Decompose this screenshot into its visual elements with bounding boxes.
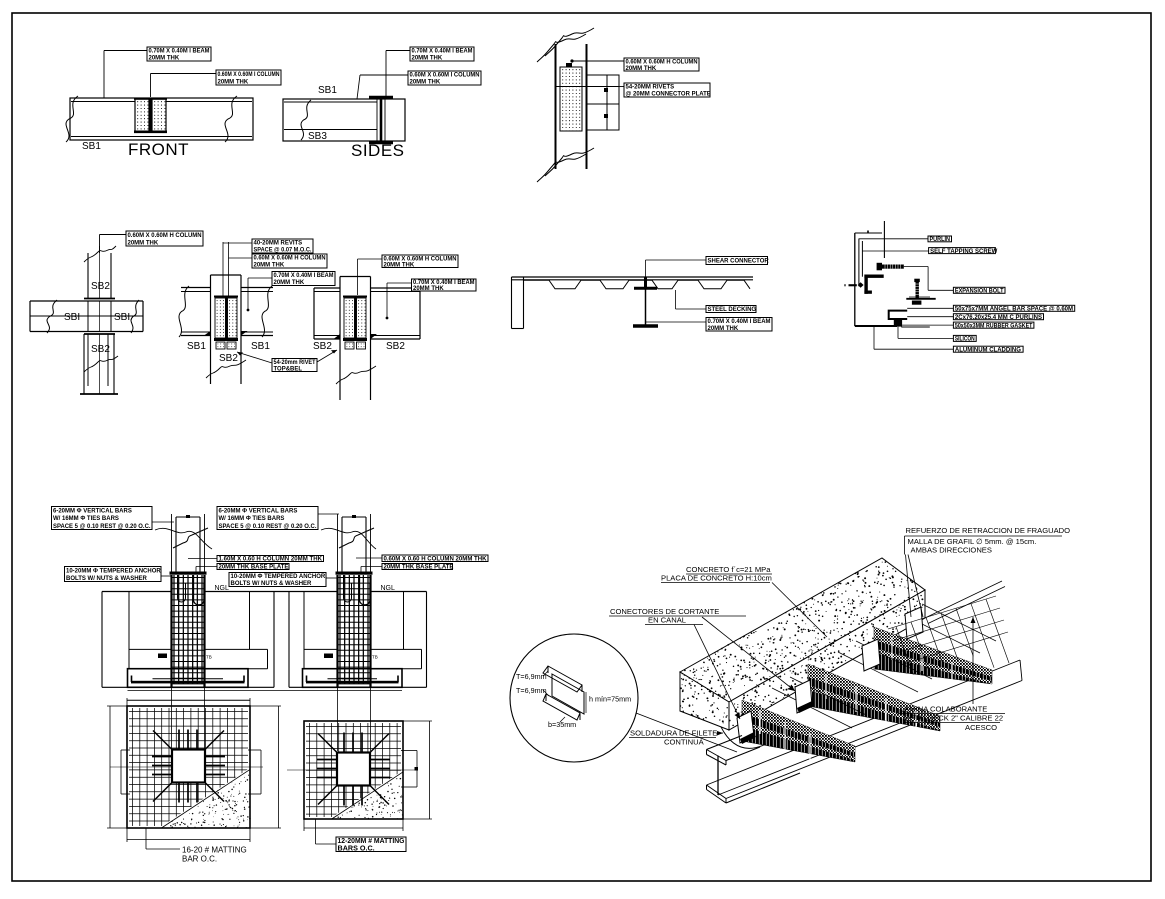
svg-text:METALDECK 2" CALIBRE 22: METALDECK 2" CALIBRE 22 [903,714,1003,723]
svg-text:SHEAR CONNECTOR: SHEAR CONNECTOR [708,259,770,265]
svg-text:STEEL DECKING: STEEL DECKING [708,307,757,313]
svg-text:BARS O.C.: BARS O.C. [338,843,375,852]
svg-text:0.60M X 0.60M H COLUMN: 0.60M X 0.60M H COLUMN [626,59,698,65]
svg-text:CONTINUA: CONTINUA [664,738,705,747]
svg-text:SB2: SB2 [386,341,405,352]
svg-text:EXPANSION BOLT: EXPANSION BOLT [955,288,1004,294]
svg-text:0.70M X 0.40M I BEAM: 0.70M X 0.40M I BEAM [708,319,771,325]
svg-text:SOLDADURA DE FILETE: SOLDADURA DE FILETE [630,729,717,738]
svg-text:20MM THK: 20MM THK [410,80,441,86]
svg-text:ACESCO: ACESCO [965,723,997,732]
svg-text:@ 20MM CONNECTOR PLATE: @ 20MM CONNECTOR PLATE [626,92,711,98]
svg-text:20MM THK BASE PLATE: 20MM THK BASE PLATE [219,565,289,571]
svg-text:20MM THK: 20MM THK [128,240,159,246]
svg-text:SILICON: SILICON [955,337,975,343]
svg-text:0.70M X 0.40M I BEAM: 0.70M X 0.40M I BEAM [412,49,473,55]
svg-text:W/ 16MM Φ TIES BARS: W/ 16MM Φ TIES BARS [53,516,119,522]
svg-text:LAMINA COLABORANTE: LAMINA COLABORANTE [900,705,987,714]
svg-text:1.60M X 0.60 H COLUMN 20MM THK: 1.60M X 0.60 H COLUMN 20MM THK [219,557,323,563]
svg-text:SB2: SB2 [219,353,238,364]
svg-text:W/ 16MM Φ TIES BARS: W/ 16MM Φ TIES BARS [219,516,285,522]
svg-text:20MM THK BASE PLATE: 20MM THK BASE PLATE [384,565,454,571]
svg-text:SB2: SB2 [91,281,110,292]
svg-text:10-20MM Φ TEMPERED ANCHOR: 10-20MM Φ TEMPERED ANCHOR [231,574,326,580]
svg-text:h mín=75mm: h mín=75mm [589,695,631,704]
svg-text:BOLTS W/ NUTS & WASHER: BOLTS W/ NUTS & WASHER [231,581,313,587]
svg-text:20MM THK: 20MM THK [254,263,285,269]
svg-text:SBI: SBI [64,312,80,323]
svg-text:SPACE @ 0.07 M.O.C.: SPACE @ 0.07 M.O.C. [254,248,312,254]
svg-text:SB1: SB1 [318,85,337,96]
svg-text:REFUERZO DE RETRACCION DE: REFUERZO DE RETRACCION DE FRAGUADO [906,526,1071,535]
svg-text:T=6,9mm: T=6,9mm [516,672,547,681]
svg-text:SB1: SB1 [251,341,270,352]
svg-text:0.60M X 0.60 H COLUMN 20MM THK: 0.60M X 0.60 H COLUMN 20MM THK [384,556,488,562]
svg-text:20MM THK: 20MM THK [384,263,415,269]
svg-text:SELF TAPPING SCREW: SELF TAPPING SCREW [930,249,998,255]
svg-text:SPACE 5 @ 0.10 REST @ 0.20 O.C: SPACE 5 @ 0.10 REST @ 0.20 O.C. [219,524,317,530]
svg-text:20MM THK: 20MM THK [274,280,305,286]
svg-text:TB: TB [206,655,212,660]
svg-text:BOLTS W/ NUTS & WASHER: BOLTS W/ NUTS & WASHER [66,576,148,582]
svg-text:0.60M X 0.60M H COLUMN: 0.60M X 0.60M H COLUMN [384,256,457,262]
svg-text:AMBAS DIRECCIONES: AMBAS DIRECCIONES [911,546,992,555]
svg-text:FRONT: FRONT [128,140,189,159]
svg-text:20MM THK: 20MM THK [626,66,657,72]
svg-text:PLACA DE CONCRETO H:10cm: PLACA DE CONCRETO H:10cm [661,574,772,583]
svg-text:50x50x3MM RUBBER GASKET: 50x50x3MM RUBBER GASKET [955,323,1033,329]
svg-text:50x75x7MM ANGEL BAR SPACE @ 0.: 50x75x7MM ANGEL BAR SPACE @ 0.60M [955,306,1073,312]
svg-text:SPACE 5 @ 0.10 REST @ 0.20 O.C: SPACE 5 @ 0.10 REST @ 0.20 O.C. [53,524,151,530]
svg-text:T=6,9mm: T=6,9mm [516,686,547,695]
svg-text:0.60M X 0.60M I COLUMN: 0.60M X 0.60M I COLUMN [218,72,280,78]
svg-text:20MM THK: 20MM THK [708,326,739,332]
svg-text:TOP&BEL: TOP&BEL [274,366,303,372]
svg-text:6-20MM Φ VERTICAL BARS: 6-20MM Φ VERTICAL BARS [219,508,298,514]
svg-text:SB3: SB3 [308,131,327,142]
svg-text:0.70M X 0.40M I BEAM: 0.70M X 0.40M I BEAM [274,273,334,279]
svg-text:0.70M X 0.40M I BEAM: 0.70M X 0.40M I BEAM [149,49,210,55]
svg-text:ALUMINUM CLADDING: ALUMINUM CLADDING [955,347,1021,353]
svg-text:TB: TB [372,655,378,660]
svg-text:SB1: SB1 [187,341,206,352]
svg-text:6-20MM Φ VERTICAL BARS: 6-20MM Φ VERTICAL BARS [53,508,132,514]
svg-text:16-20 # MATTING: 16-20 # MATTING [182,846,247,855]
svg-text:0.60M X 0.60M H COLUMN: 0.60M X 0.60M H COLUMN [254,256,326,262]
svg-text:20MM THK: 20MM THK [412,56,443,62]
svg-text:SBI: SBI [114,312,130,323]
svg-text:EN CANAL: EN CANAL [648,616,686,625]
svg-text:0.60M X 0.60M I COLUMN: 0.60M X 0.60M I COLUMN [410,73,480,79]
svg-text:54-20MM RIVETS: 54-20MM RIVETS [626,85,675,91]
svg-text:SB2: SB2 [91,344,110,355]
svg-text:2Cx76.20x25.4 MM C PURLINS: 2Cx76.20x25.4 MM C PURLINS [955,315,1042,321]
svg-text:SB1: SB1 [82,141,101,152]
svg-text:PURLIN: PURLIN [930,237,951,243]
svg-text:20MM THK: 20MM THK [149,56,180,62]
svg-text:20MM THK: 20MM THK [413,286,444,292]
svg-text:54-20mm RIVET: 54-20mm RIVET [274,360,316,366]
svg-text:b=35mm: b=35mm [548,720,576,729]
svg-text:10-20MM Φ TEMPERED ANCHOR: 10-20MM Φ TEMPERED ANCHOR [66,568,161,574]
svg-text:SIDES: SIDES [351,141,405,160]
svg-text:BAR O.C.: BAR O.C. [182,855,217,864]
svg-text:20MM THK: 20MM THK [218,79,249,85]
svg-text:0.60M X 0.60M H COLUMN: 0.60M X 0.60M H COLUMN [128,233,202,239]
svg-text:40-20MM REVITS: 40-20MM REVITS [254,241,303,247]
svg-text:SB2: SB2 [313,341,332,352]
